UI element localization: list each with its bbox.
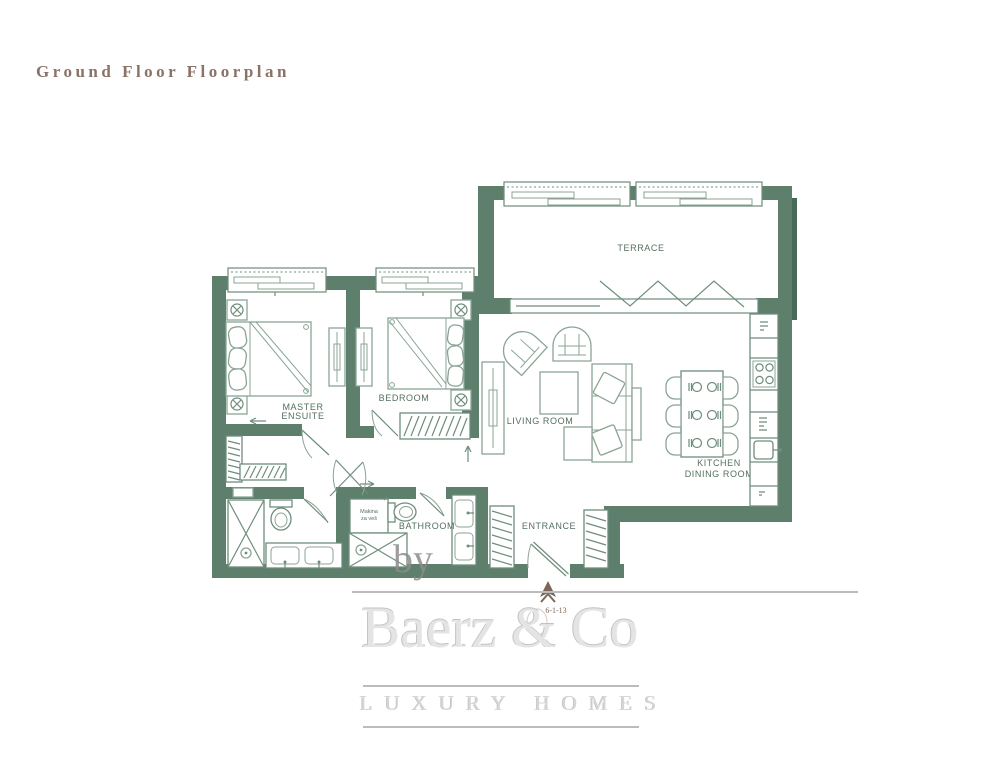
master-bedroom-window-icon	[228, 268, 326, 296]
double-vanity-icon	[266, 543, 342, 568]
page-title: Ground Floor Floorplan	[36, 62, 290, 82]
door-swing-icon	[372, 410, 398, 436]
master-bed-icon	[226, 322, 311, 396]
shower-icon	[228, 500, 264, 567]
ensuite-bathroom	[228, 499, 342, 568]
niche-icon	[233, 488, 253, 497]
downlight-icon	[451, 390, 471, 410]
bed-icon	[388, 318, 464, 389]
watermark-divider	[363, 726, 639, 728]
downlight-icon	[227, 394, 247, 414]
room-label-bathroom: BATHROOM	[399, 521, 455, 531]
armchair-icon	[553, 327, 591, 361]
kitchen-counter	[750, 314, 782, 506]
room-label-kitchen-line1: KITCHEN	[697, 458, 741, 468]
door-swing-icon	[420, 493, 444, 516]
terrace-window-left-icon	[504, 182, 630, 206]
door-swing-icon	[302, 430, 329, 458]
side-table-icon	[632, 388, 641, 440]
floorplan-page: { "title": "Ground Floor Floorplan", "co…	[0, 0, 1000, 760]
door-swing-icon	[304, 499, 328, 523]
downlight-icon	[451, 300, 471, 320]
terrace-window-right-icon	[636, 182, 762, 206]
watermark-tagline: LUXURY HOMES	[360, 691, 652, 716]
closet-icon	[490, 506, 514, 568]
entrance-door-icon	[528, 542, 569, 576]
watermark-by: by	[393, 535, 433, 582]
watermark-divider	[352, 591, 858, 593]
room-label-bedroom: BEDROOM	[379, 393, 430, 403]
living-room: LIVING ROOM	[482, 324, 641, 462]
watermark-brand: Baerz & Co	[348, 594, 652, 661]
watermark-divider	[363, 685, 639, 687]
washing-machine-icon: Makina za veš	[350, 497, 388, 533]
bedroom: BEDROOM	[356, 300, 471, 439]
windows	[228, 182, 762, 313]
hanging-rail-icon	[226, 436, 286, 482]
master-bedroom: MASTER ENSUITE	[226, 300, 345, 421]
toilet-icon	[270, 500, 292, 530]
room-label-living-room: LIVING ROOM	[507, 416, 574, 426]
radiator-icon	[329, 328, 345, 386]
coffee-table-icon	[540, 372, 578, 414]
bedroom-window-icon	[376, 268, 474, 296]
room-label-master-ensuite-line2: ENSUITE	[281, 411, 324, 421]
terrace-sliding-door-icon	[510, 281, 758, 313]
room-label-terrace: TERRACE	[617, 243, 664, 253]
radiator-icon	[482, 362, 504, 454]
wardrobe-icon	[400, 413, 470, 439]
appliance-label-line2: za veš	[361, 516, 377, 522]
entrance: ENTRANCE	[490, 506, 608, 576]
step-arrow-icon	[465, 446, 471, 462]
closet-icon	[584, 510, 608, 568]
double-vanity-icon	[452, 495, 476, 565]
room-label-kitchen-line2: DINING ROOM	[685, 469, 754, 479]
dining-area: KITCHEN DINING ROOM	[666, 371, 753, 479]
appliance-label-line1: Makina	[360, 509, 379, 515]
slide-arrow-icon	[360, 481, 374, 487]
toilet-icon	[388, 503, 416, 522]
slide-arrow-icon	[250, 418, 266, 424]
room-label-entrance: ENTRANCE	[522, 521, 576, 531]
radiator-icon	[356, 328, 372, 386]
downlight-icon	[227, 300, 247, 320]
